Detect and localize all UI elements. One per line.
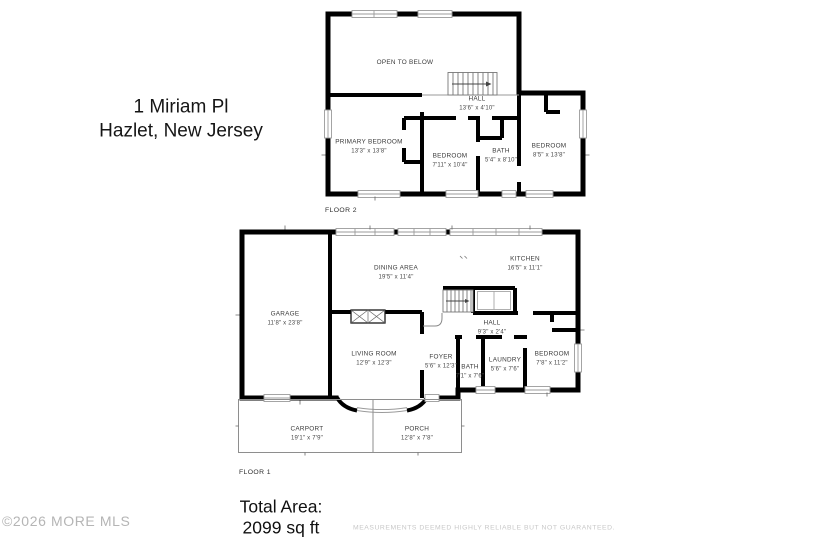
mls-watermark: ©2026 MORE MLS [2, 513, 130, 529]
measurement-disclaimer: MEASUREMENTS DEEMED HIGHLY RELIABLE BUT … [353, 525, 615, 532]
floor1-tag: FLOOR 1 [239, 469, 271, 476]
total-area-value: 2099 sq ft [240, 518, 323, 539]
total-area: Total Area: 2099 sq ft [240, 497, 323, 540]
floorplan-page: 1 Miriam Pl Hazlet, New Jersey OPEN TO B… [0, 0, 825, 550]
staircase-floor1 [443, 290, 473, 312]
floor1-footprint [242, 232, 578, 398]
total-area-label: Total Area: [240, 497, 323, 518]
address-line1: 1 Miriam Pl [99, 95, 263, 119]
fireplace [351, 310, 385, 323]
address-line2: Hazlet, New Jersey [99, 119, 263, 143]
staircase-floor2 [448, 73, 497, 96]
floor2-plan [325, 11, 587, 198]
floorplan-drawing [0, 0, 825, 550]
property-address: 1 Miriam Pl Hazlet, New Jersey [99, 95, 263, 143]
floor2-tag: FLOOR 2 [325, 207, 357, 214]
floor1-plan [239, 229, 582, 453]
